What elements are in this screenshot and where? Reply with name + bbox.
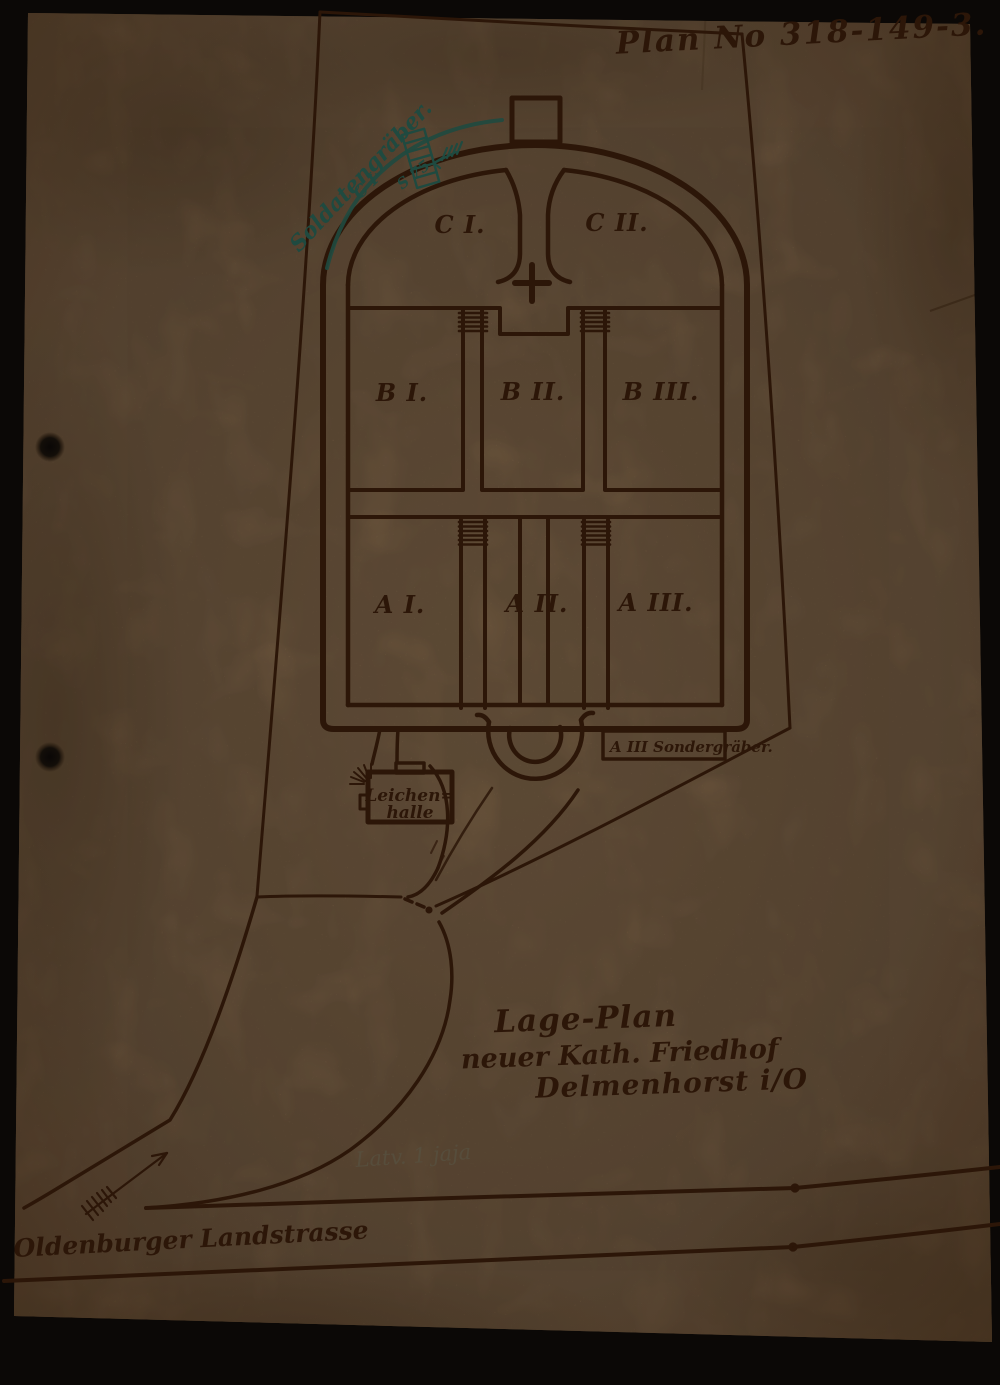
scanned-plan-page: Plan No 318-149-3. C I. C II. B I. B II.…	[0, 0, 1000, 1385]
paper-sheet	[0, 0, 1000, 1385]
mortuary-label-line2: halle	[386, 803, 433, 823]
section-label-b1: B I.	[375, 378, 428, 407]
title-line1: Lage-Plan	[493, 998, 678, 1040]
section-label-a3: A III.	[616, 588, 693, 617]
punch-hole	[35, 742, 65, 772]
punch-hole	[35, 432, 65, 462]
section-label-c1: C I.	[434, 210, 485, 239]
sondergraeber-label: A III Sondergräber.	[608, 738, 773, 756]
section-label-b2: B II.	[500, 377, 565, 406]
section-label-a1: A I.	[373, 590, 426, 619]
section-label-b3: B III.	[622, 377, 700, 406]
section-label-c2: C II.	[585, 208, 648, 237]
section-label-a2: A II.	[504, 589, 569, 618]
